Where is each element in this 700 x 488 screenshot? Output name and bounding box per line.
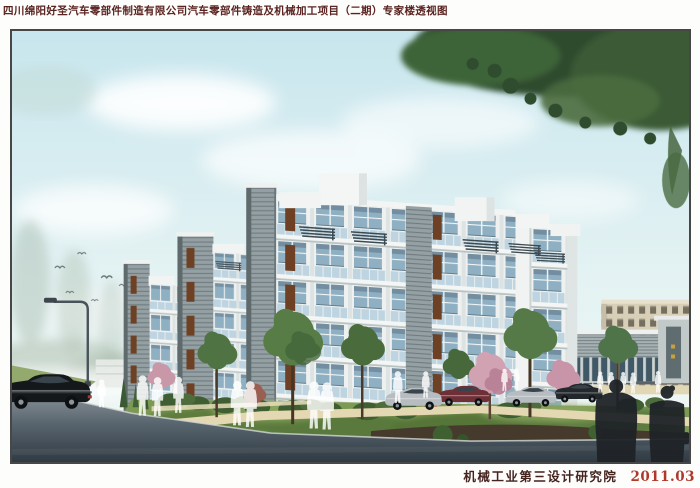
drawing-title: 四川绵阳好圣汽车零部件制造有限公司汽车零部件铸造及机械加工项目（二期）专家楼透视… [3, 3, 693, 18]
drawing-date: 2011.03 [630, 469, 695, 485]
institute-name: 机械工业第三设计研究院 [463, 466, 617, 485]
perspective-rendering [12, 31, 689, 462]
title-block: 机械工业第三设计研究院 2011.03 [463, 466, 695, 485]
rendering-frame [10, 29, 691, 464]
